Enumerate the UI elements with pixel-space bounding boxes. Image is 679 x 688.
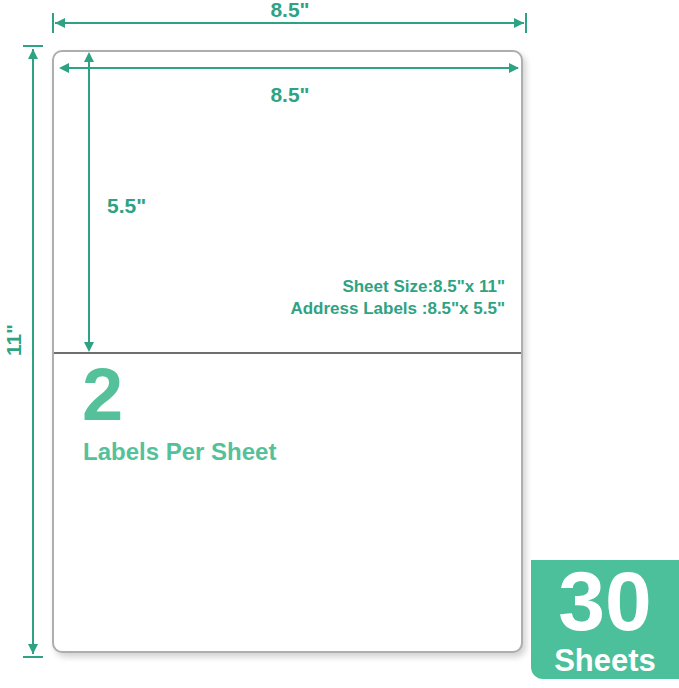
sheet-size-text: Sheet Size:8.5"x 11" bbox=[200, 276, 505, 298]
arrow-left-icon bbox=[55, 18, 65, 28]
badge-count: 30 bbox=[558, 563, 651, 640]
spec-text: Sheet Size:8.5"x 11" Address Labels :8.5… bbox=[200, 276, 505, 320]
dimension-cap bbox=[525, 13, 527, 33]
arrow-down-icon bbox=[84, 342, 94, 352]
arrow-down-icon bbox=[28, 644, 38, 654]
labels-count-caption: Labels Per Sheet bbox=[83, 438, 276, 466]
outer-height-label: 11" bbox=[2, 318, 26, 362]
inner-width-label: 8.5" bbox=[53, 83, 527, 107]
arrow-up-icon bbox=[28, 49, 38, 59]
sheets-badge: 30 Sheets bbox=[531, 560, 679, 679]
arrow-left-icon bbox=[59, 63, 69, 73]
dimension-cap bbox=[52, 13, 54, 33]
product-diagram: 8.5" 11" 8.5" 5.5" Sheet Size:8.5"x 11" … bbox=[0, 0, 679, 688]
badge-unit: Sheets bbox=[554, 645, 656, 676]
outer-width-label: 8.5" bbox=[53, 0, 527, 22]
label-divider bbox=[54, 352, 521, 354]
address-labels-text: Address Labels :8.5"x 5.5" bbox=[200, 298, 505, 320]
arrow-right-icon bbox=[509, 63, 519, 73]
outer-height-dimension-line bbox=[32, 49, 34, 654]
arrow-right-icon bbox=[514, 18, 524, 28]
label-height-label: 5.5" bbox=[107, 194, 146, 218]
labels-count-number: 2 bbox=[82, 358, 123, 432]
dimension-cap bbox=[23, 656, 43, 658]
label-sheet bbox=[52, 50, 523, 653]
arrow-up-icon bbox=[84, 52, 94, 62]
dimension-cap bbox=[23, 45, 43, 47]
inner-width-dimension-line bbox=[62, 67, 518, 69]
label-height-dimension-line bbox=[88, 55, 90, 349]
outer-width-dimension-line bbox=[55, 22, 524, 24]
